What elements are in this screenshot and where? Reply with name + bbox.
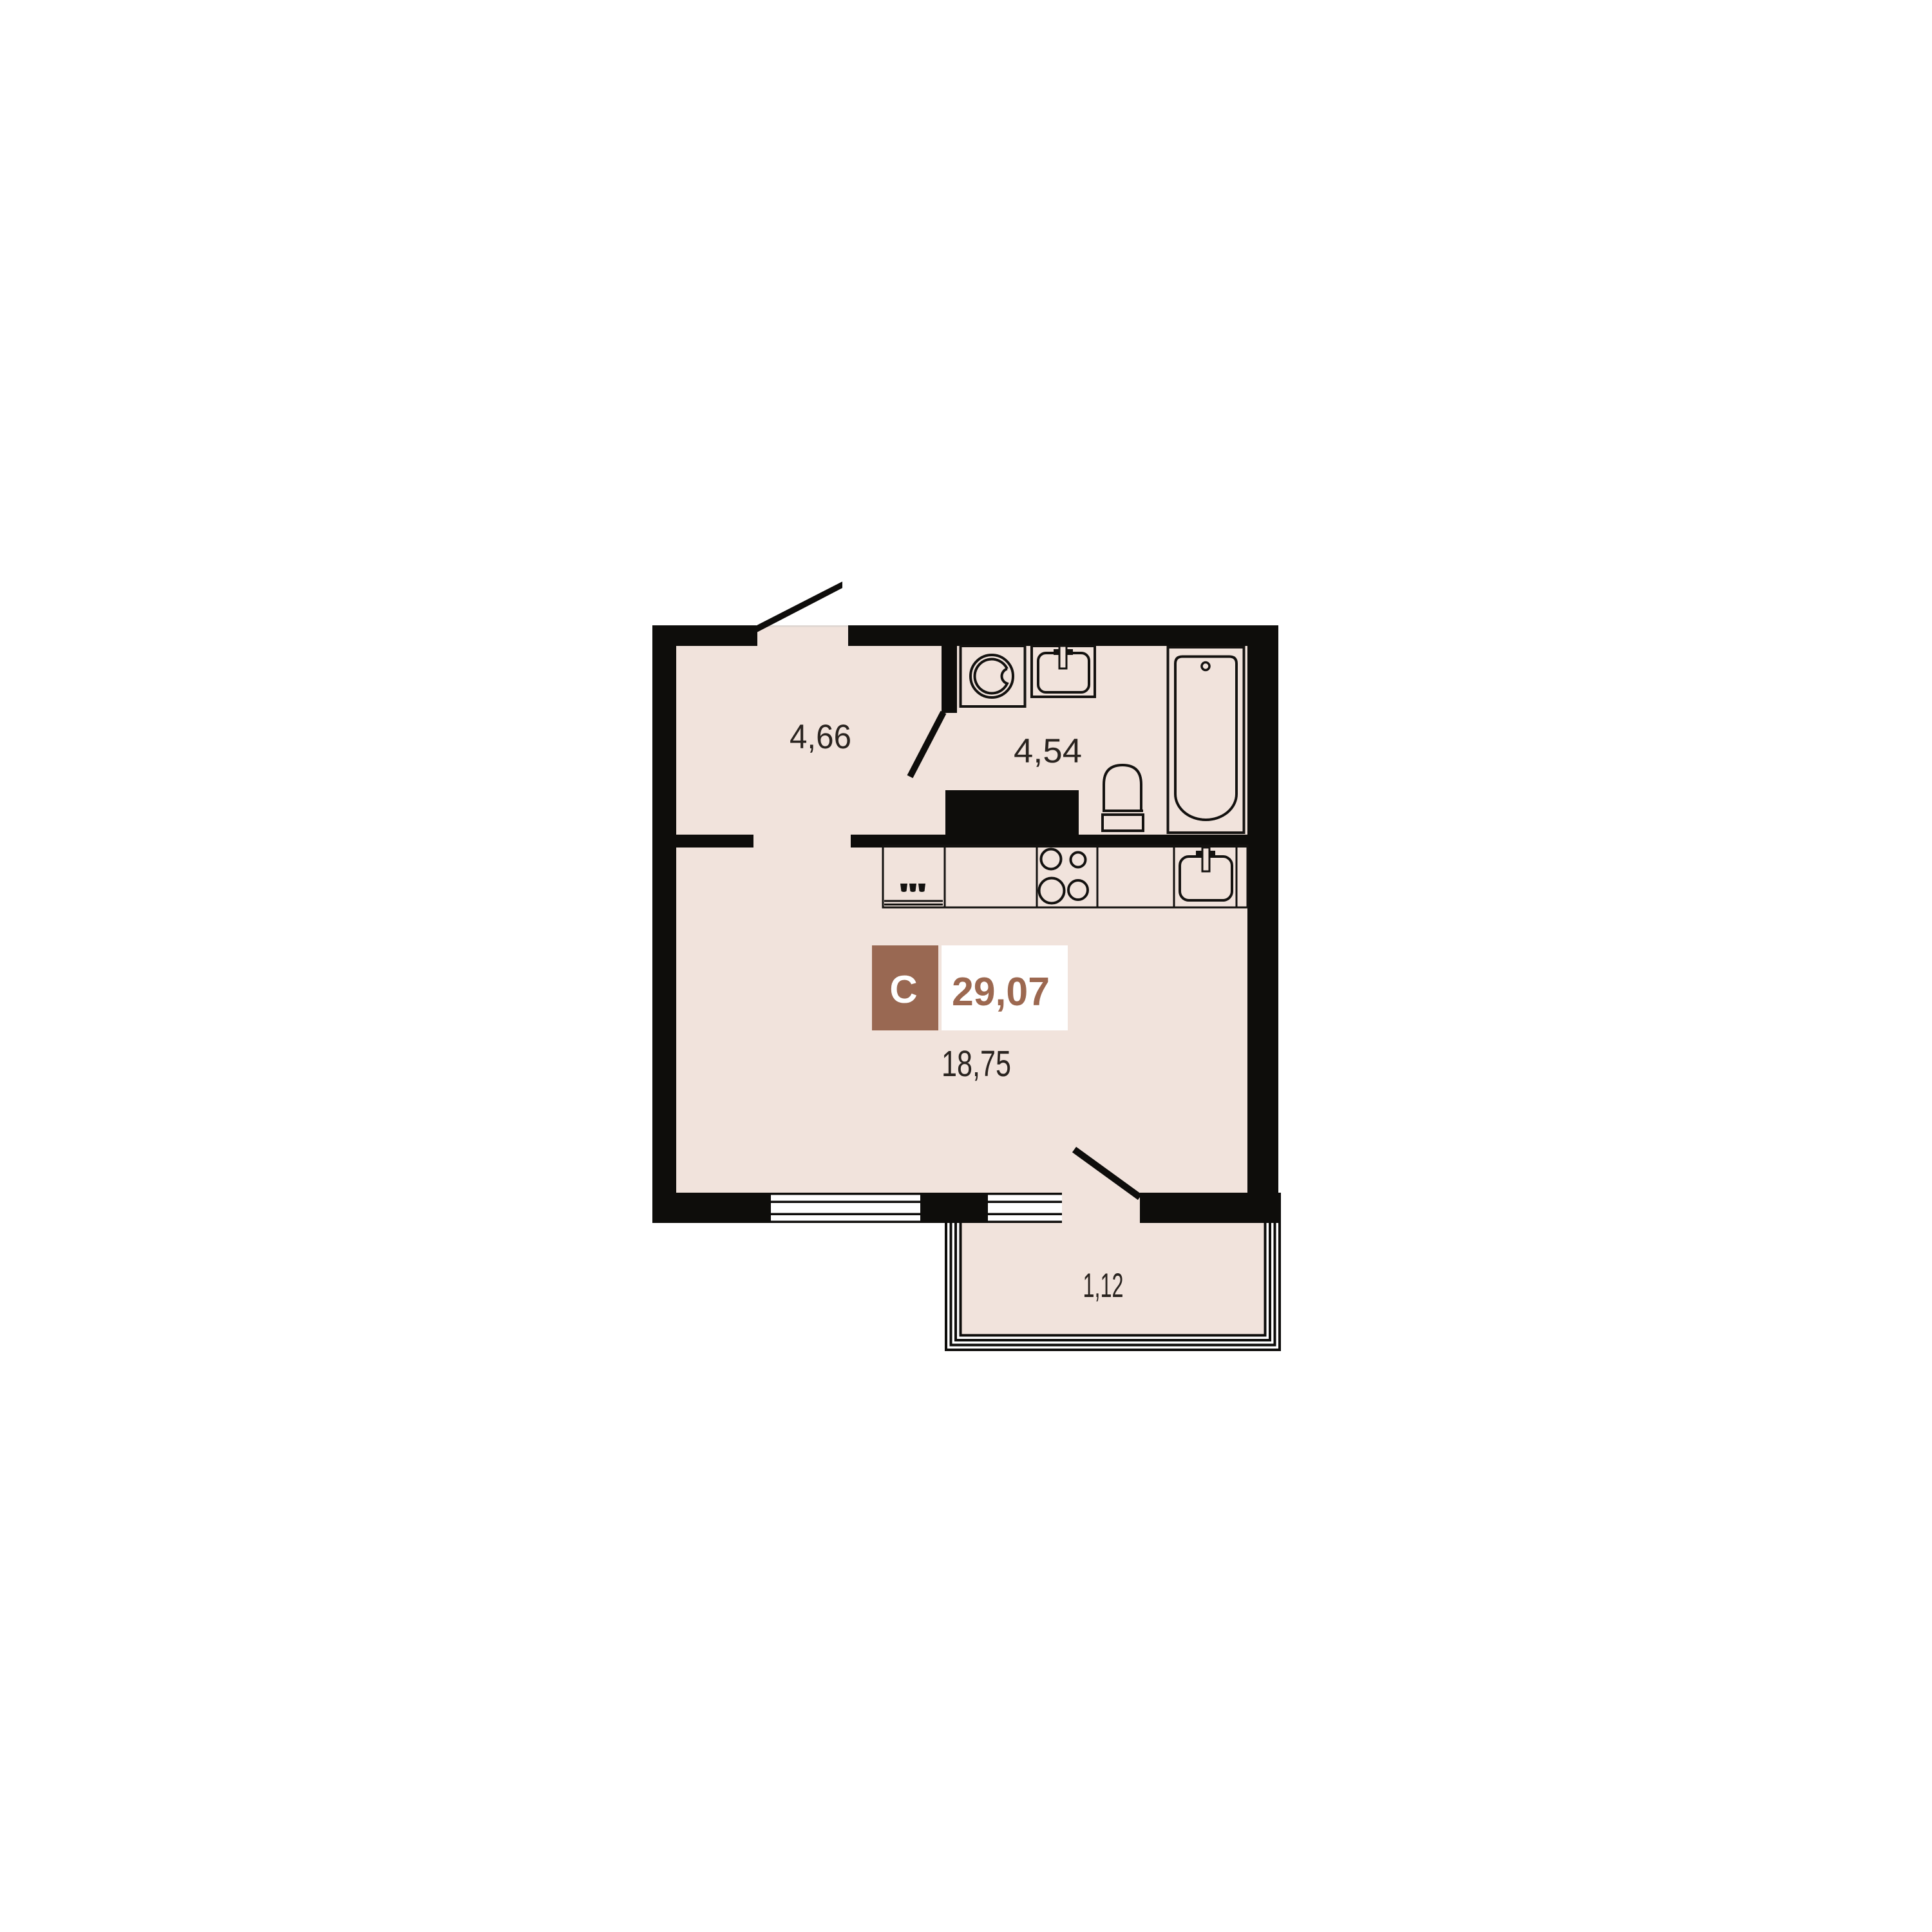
svg-text:1,12: 1,12 (1083, 1267, 1124, 1305)
svg-text:4,66: 4,66 (790, 718, 851, 756)
svg-text:С: С (889, 968, 917, 1011)
svg-text:29,07: 29,07 (952, 970, 1050, 1014)
svg-text:4,54: 4,54 (1014, 732, 1082, 770)
svg-text:18,75: 18,75 (942, 1043, 1011, 1084)
